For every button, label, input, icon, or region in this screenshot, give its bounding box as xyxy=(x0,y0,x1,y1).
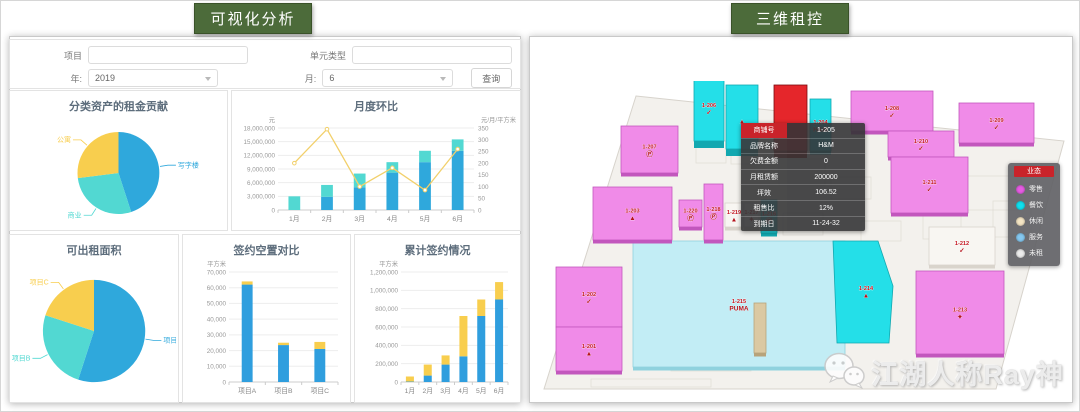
shop-number-label: 1-213 xyxy=(953,308,967,314)
year-label: 年: xyxy=(20,72,82,85)
shop-block-1-220[interactable]: 1-220Ⓟ xyxy=(679,200,702,231)
right-axis-unit: 元/月/平方米 xyxy=(481,115,517,124)
legend-item[interactable]: 服务 xyxy=(1008,229,1060,245)
block-side-face xyxy=(556,371,622,375)
y-axis-tick-label: 40,000 xyxy=(207,316,227,323)
tooltip-row: 坪效106.52 xyxy=(741,185,865,201)
y-axis-tick-label: 70,000 xyxy=(207,269,227,276)
shop-block-1-206[interactable]: 1-206✓ xyxy=(694,81,724,148)
x-axis-tick-label: 1月 xyxy=(405,387,416,395)
dashboard: 可视化分析 三维租控 项目 单元类型 年: 2019 月: 6 xyxy=(0,0,1080,412)
pie-label: 商业 xyxy=(68,211,82,220)
shop-block-1-215[interactable]: 1-215PUMA xyxy=(633,241,845,371)
visual-analysis-panel: 项目 单元类型 年: 2019 月: 6 查询 分类资产的租金贡献 xyxy=(9,36,521,403)
legend-item[interactable]: 餐饮 xyxy=(1008,197,1060,213)
block-side-face xyxy=(633,367,845,371)
tooltip-row: 月租赁额200000 xyxy=(741,170,865,186)
right-panel-title-badge: 三维租控 xyxy=(731,3,849,34)
block-side-face xyxy=(891,213,968,217)
bar-segment xyxy=(406,377,414,382)
tooltip-row-label: 月租赁额 xyxy=(741,170,787,185)
brand-logo-NIKE: ✓ xyxy=(927,187,932,194)
y-axis-tick-label: 1,000,000 xyxy=(370,288,399,295)
tooltip-row-value: 12% xyxy=(787,201,865,216)
brand-logo-NIKE: ✓ xyxy=(889,113,894,120)
tooltip-row: 商铺号1-205 xyxy=(741,123,865,139)
right-axis-tick-label: 100 xyxy=(478,184,489,191)
brand-logo-adidas: ▲ xyxy=(586,351,592,358)
brand-logo-NIKE: ✓ xyxy=(918,146,923,153)
y-axis-tick-label: 1,200,000 xyxy=(370,269,399,276)
bar-segment xyxy=(278,343,289,345)
shop-number-label: 1-203 xyxy=(625,209,639,215)
rentable-area-pie-chart[interactable]: 项目A项目B项目C xyxy=(12,257,176,399)
block-side-face xyxy=(593,240,672,244)
y-axis-tick-label: 18,000,000 xyxy=(243,125,275,132)
legend-item[interactable]: 休闲 xyxy=(1008,213,1060,229)
y-axis-tick-label: 10,000 xyxy=(207,364,227,371)
cumulative-signing-chart[interactable]: 0200,000400,000600,000800,0001,000,0001,… xyxy=(357,257,518,399)
tooltip-row-value: 0 xyxy=(787,154,865,169)
y-axis-tick-label: 200,000 xyxy=(375,361,398,368)
y-axis-tick-label: 0 xyxy=(222,379,226,386)
legend-item-label: 休闲 xyxy=(1029,216,1043,226)
bar-segment xyxy=(477,316,485,382)
bar-segment xyxy=(452,151,464,210)
shop-number-label: 1-220 xyxy=(683,209,697,215)
block-side-face xyxy=(679,227,702,231)
tooltip-row: 品牌名称H&M xyxy=(741,139,865,155)
tooltip-row-label: 商铺号 xyxy=(741,123,787,138)
y-axis-tick-label: 400,000 xyxy=(375,343,398,350)
bar-segment xyxy=(477,300,485,317)
line-marker xyxy=(358,185,362,189)
right-axis-tick-label: 0 xyxy=(478,207,482,214)
shop-block-pillar[interactable] xyxy=(754,303,766,357)
brand-logo-adidas: ▲ xyxy=(863,292,869,299)
filter-bar: 项目 单元类型 年: 2019 月: 6 查询 xyxy=(9,39,521,89)
pie-label-line xyxy=(73,140,87,145)
shop-number-label: 1-208 xyxy=(885,106,899,112)
category-legend: 业态 零售餐饮休闲服务未租 xyxy=(1008,163,1060,266)
x-axis-tick-label: 项目C xyxy=(311,387,330,395)
shop-number-label: 1-202 xyxy=(582,292,596,298)
bar-segment xyxy=(495,282,503,299)
line-marker xyxy=(391,166,395,170)
legend-item[interactable]: 未租 xyxy=(1008,245,1060,261)
vacancy-compare-card: 签约空置对比 010,00020,00030,00040,00050,00060… xyxy=(182,234,351,403)
x-axis-tick-label: 6月 xyxy=(494,387,505,395)
line-series xyxy=(294,129,457,190)
block-side-face xyxy=(621,173,678,177)
unit-type-label: 单元类型 xyxy=(274,49,346,62)
brand-logo-adidas: ▲ xyxy=(629,215,635,222)
legend-item-label: 服务 xyxy=(1029,232,1043,242)
shop-number-label: 1-218 xyxy=(706,207,720,213)
tooltip-row-value: 200000 xyxy=(787,170,865,185)
tooltip-row-label: 租售比 xyxy=(741,201,787,216)
right-axis-tick-label: 200 xyxy=(478,160,489,167)
x-axis-tick-label: 4月 xyxy=(458,387,469,395)
legend-color-dot xyxy=(1016,249,1025,258)
rent-contribution-pie-chart[interactable]: 写字楼商业公寓 xyxy=(12,113,225,227)
tooltip-row-label: 欠费金额 xyxy=(741,154,787,169)
x-axis-tick-label: 项目B xyxy=(274,387,293,395)
block-side-face xyxy=(754,353,766,357)
y-axis-tick-label: 0 xyxy=(271,207,275,214)
pie-label-line xyxy=(145,339,161,340)
bar-segment xyxy=(278,345,289,382)
brand-logo-PUMA: Ⓟ xyxy=(646,149,653,158)
left-panel-title-badge: 可视化分析 xyxy=(194,3,312,34)
shop-number-label: 1-211 xyxy=(923,180,937,186)
shop-number-label: 1-219 xyxy=(727,210,741,216)
bar-segment xyxy=(442,365,450,382)
legend-item-label: 餐饮 xyxy=(1029,200,1043,210)
brand-logo-NIKE: ✓ xyxy=(994,125,999,132)
unit-type-input[interactable] xyxy=(352,46,512,64)
brand-logo-PUMA: Ⓟ xyxy=(687,213,694,222)
tooltip-row-value: 1-205 xyxy=(787,123,865,138)
line-marker xyxy=(456,147,460,151)
x-axis-tick-label: 2月 xyxy=(322,215,333,223)
shop-number-label: 1-215 xyxy=(732,299,746,305)
rent-contribution-card: 分类资产的租金贡献 写字楼商业公寓 xyxy=(9,90,228,231)
block-side-face xyxy=(694,141,724,148)
watermark: 江湖人称Ray神 xyxy=(821,349,1064,396)
bar-segment xyxy=(386,173,398,210)
shop-block-1-209[interactable]: 1-209✓ xyxy=(959,103,1034,147)
project-input[interactable] xyxy=(88,46,248,64)
shop-block-1-202[interactable]: 1-202✓ xyxy=(556,267,622,331)
y-axis-tick-label: 50,000 xyxy=(207,301,227,308)
chart-title: 可出租面积 xyxy=(10,235,178,258)
brand-logo-adidas: ▲ xyxy=(731,217,737,224)
x-axis-tick-label: 6月 xyxy=(452,215,463,223)
y-axis-tick-label: 60,000 xyxy=(207,285,227,292)
shop-number-label: 1-210 xyxy=(914,139,928,145)
bar-segment xyxy=(314,349,325,382)
y-axis-tick-label: 6,000,000 xyxy=(247,180,276,187)
legend-color-dot xyxy=(1016,233,1025,242)
pie-label-line xyxy=(51,282,64,288)
bar-segment xyxy=(314,342,325,349)
pie-svg: 写字楼商业公寓 xyxy=(12,113,225,227)
brand-logo-NIKE: ✓ xyxy=(706,110,711,117)
y-axis-unit: 平方米 xyxy=(207,259,227,268)
watermark-text: 江湖人称Ray神 xyxy=(871,353,1064,392)
wechat-icon xyxy=(821,349,869,396)
year-value: 2019 xyxy=(95,73,115,83)
shop-tooltip: 商铺号1-205品牌名称H&M欠费金额0月租赁额200000坪效106.52租售… xyxy=(741,123,865,231)
block-side-face xyxy=(929,265,995,269)
tooltip-row-value: 106.52 xyxy=(787,185,865,200)
pie-label-line xyxy=(160,165,176,166)
y-axis-tick-label: 0 xyxy=(394,379,398,386)
month-label: 月: xyxy=(244,72,316,85)
x-axis-tick-label: 3月 xyxy=(354,215,365,223)
vacancy-compare-chart[interactable]: 010,00020,00030,00040,00050,00060,00070,… xyxy=(185,257,348,399)
bar-segment xyxy=(242,285,253,382)
bar-segment xyxy=(321,185,333,197)
project-label: 项目 xyxy=(20,49,82,62)
pie-label: 项目A xyxy=(163,337,176,345)
monthly-comparison-card: 月度环比 03,000,0006,000,0009,000,00012,000,… xyxy=(231,90,521,231)
chevron-down-icon xyxy=(205,77,211,81)
tooltip-row-label: 坪效 xyxy=(741,185,787,200)
x-axis-tick-label: 项目A xyxy=(238,387,257,395)
shop-block-1-203[interactable]: 1-203▲ xyxy=(593,187,672,244)
bar-segment xyxy=(495,300,503,383)
shop-block-1-218[interactable]: 1-218Ⓟ xyxy=(704,184,723,244)
bar-segment xyxy=(459,316,467,356)
legend-title: 业态 xyxy=(1014,166,1054,177)
brand-logo-PUMA: Ⓟ xyxy=(710,212,717,221)
chart-title: 月度环比 xyxy=(232,91,520,114)
y-axis-unit: 元 xyxy=(269,116,276,124)
bar-segment xyxy=(459,356,467,382)
pie-label-line xyxy=(32,355,47,359)
pie-label: 公寓 xyxy=(57,135,71,144)
legend-color-dot xyxy=(1016,217,1025,226)
shop-number-label: 1-209 xyxy=(989,118,1003,124)
tooltip-row-label: 到期日 xyxy=(741,217,787,232)
right-axis-tick-label: 50 xyxy=(478,196,486,203)
bar-svg: 03,000,0006,000,0009,000,00012,000,00015… xyxy=(234,113,518,227)
legend-item-label: 零售 xyxy=(1029,184,1043,194)
shop-block-1-207[interactable]: 1-207Ⓟ xyxy=(621,126,678,177)
y-axis-tick-label: 3,000,000 xyxy=(247,194,276,201)
legend-item[interactable]: 零售 xyxy=(1008,181,1060,197)
year-select[interactable]: 2019 xyxy=(88,69,218,87)
line-marker xyxy=(325,127,329,131)
x-axis-tick-label: 2月 xyxy=(422,387,433,395)
month-select[interactable]: 6 xyxy=(322,69,452,87)
shop-number-label: 1-201 xyxy=(582,344,596,350)
bar-segment xyxy=(442,355,450,364)
tooltip-row: 到期日11-24-32 xyxy=(741,217,865,232)
bar-segment xyxy=(354,187,366,210)
monthly-comparison-chart[interactable]: 03,000,0006,000,0009,000,00012,000,00015… xyxy=(234,113,518,227)
block-side-face xyxy=(959,143,1034,147)
bar-segment xyxy=(424,376,432,382)
bar-segment xyxy=(321,197,333,210)
pie-label-line xyxy=(84,208,96,215)
shop-block-1-201[interactable]: 1-201▲ xyxy=(556,327,622,375)
brand-logo-NIKE: ✓ xyxy=(959,248,964,255)
y-axis-tick-label: 9,000,000 xyxy=(247,166,276,173)
rent-control-3d-panel: 1-206✓▲1-204H&M1-208✓1-209✓1-210✓1-211✓1… xyxy=(529,36,1073,403)
pie-svg: 项目A项目B项目C xyxy=(12,257,176,399)
y-axis-tick-label: 20,000 xyxy=(207,348,227,355)
right-axis-tick-label: 250 xyxy=(478,149,489,156)
legend-color-dot xyxy=(1016,185,1025,194)
tooltip-row-label: 品牌名称 xyxy=(741,139,787,154)
x-axis-tick-label: 5月 xyxy=(420,215,431,223)
brand-logo-PUMA: PUMA xyxy=(729,306,748,313)
brand-logo-apple: ✦ xyxy=(957,313,963,321)
y-axis-tick-label: 12,000,000 xyxy=(243,153,275,160)
bar-svg: 0200,000400,000600,000800,0001,000,0001,… xyxy=(357,257,518,399)
month-value: 6 xyxy=(329,73,334,83)
pie-label: 项目B xyxy=(12,355,31,363)
y-axis-tick-label: 600,000 xyxy=(375,324,398,331)
line-marker xyxy=(423,188,427,192)
x-axis-tick-label: 5月 xyxy=(476,387,487,395)
brand-logo-NIKE: ✓ xyxy=(586,299,591,306)
line-marker xyxy=(293,161,297,165)
bar-segment xyxy=(419,162,431,210)
shop-block-1-213[interactable]: 1-213✦ xyxy=(916,271,1004,358)
bar-svg: 010,00020,00030,00040,00050,00060,00070,… xyxy=(185,257,348,399)
shop-number-label: 1-206 xyxy=(702,103,716,109)
y-axis-tick-label: 800,000 xyxy=(375,306,398,313)
tooltip-row: 租售比12% xyxy=(741,201,865,217)
tooltip-row-value: 11-24-32 xyxy=(787,217,865,232)
right-axis-tick-label: 300 xyxy=(478,137,489,144)
chevron-down-icon xyxy=(440,77,446,81)
search-button[interactable]: 查询 xyxy=(471,68,512,88)
shop-number-label: 1-212 xyxy=(955,241,969,247)
right-axis-tick-label: 350 xyxy=(478,125,489,132)
rentable-area-card: 可出租面积 项目A项目B项目C xyxy=(9,234,179,403)
shop-number-label: 1-207 xyxy=(642,145,656,151)
chart-title: 分类资产的租金贡献 xyxy=(10,91,227,114)
shop-block-1-212[interactable]: 1-212✓ xyxy=(929,227,995,269)
x-axis-tick-label: 1月 xyxy=(289,215,300,223)
right-axis-tick-label: 150 xyxy=(478,172,489,179)
bar-segment xyxy=(242,281,253,284)
y-axis-unit: 平方米 xyxy=(379,259,399,268)
chart-title: 累计签约情况 xyxy=(355,235,520,258)
shop-block-1-210[interactable]: 1-210✓ xyxy=(888,131,954,161)
y-axis-tick-label: 30,000 xyxy=(207,332,227,339)
bar-segment xyxy=(424,365,432,376)
tooltip-row-value: H&M xyxy=(787,139,865,154)
pie-label: 写字楼 xyxy=(178,160,199,169)
cumulative-signing-card: 累计签约情况 0200,000400,000600,000800,0001,00… xyxy=(354,234,521,403)
shop-number-label: 1-214 xyxy=(859,286,874,292)
bar-segment xyxy=(288,196,300,210)
tooltip-row: 欠费金额0 xyxy=(741,154,865,170)
pie-label: 项目C xyxy=(30,279,49,287)
block-side-face xyxy=(704,240,723,244)
chart-title: 签约空置对比 xyxy=(183,235,350,258)
x-axis-tick-label: 3月 xyxy=(440,387,451,395)
shop-block-1-211[interactable]: 1-211✓ xyxy=(891,157,968,217)
pie-slice xyxy=(77,132,118,178)
x-axis-tick-label: 4月 xyxy=(387,215,398,223)
block-side-face xyxy=(761,233,777,237)
y-axis-tick-label: 15,000,000 xyxy=(243,139,275,146)
bar-segment xyxy=(419,151,431,162)
legend-color-dot xyxy=(1016,201,1025,210)
legend-item-label: 未租 xyxy=(1029,248,1043,258)
